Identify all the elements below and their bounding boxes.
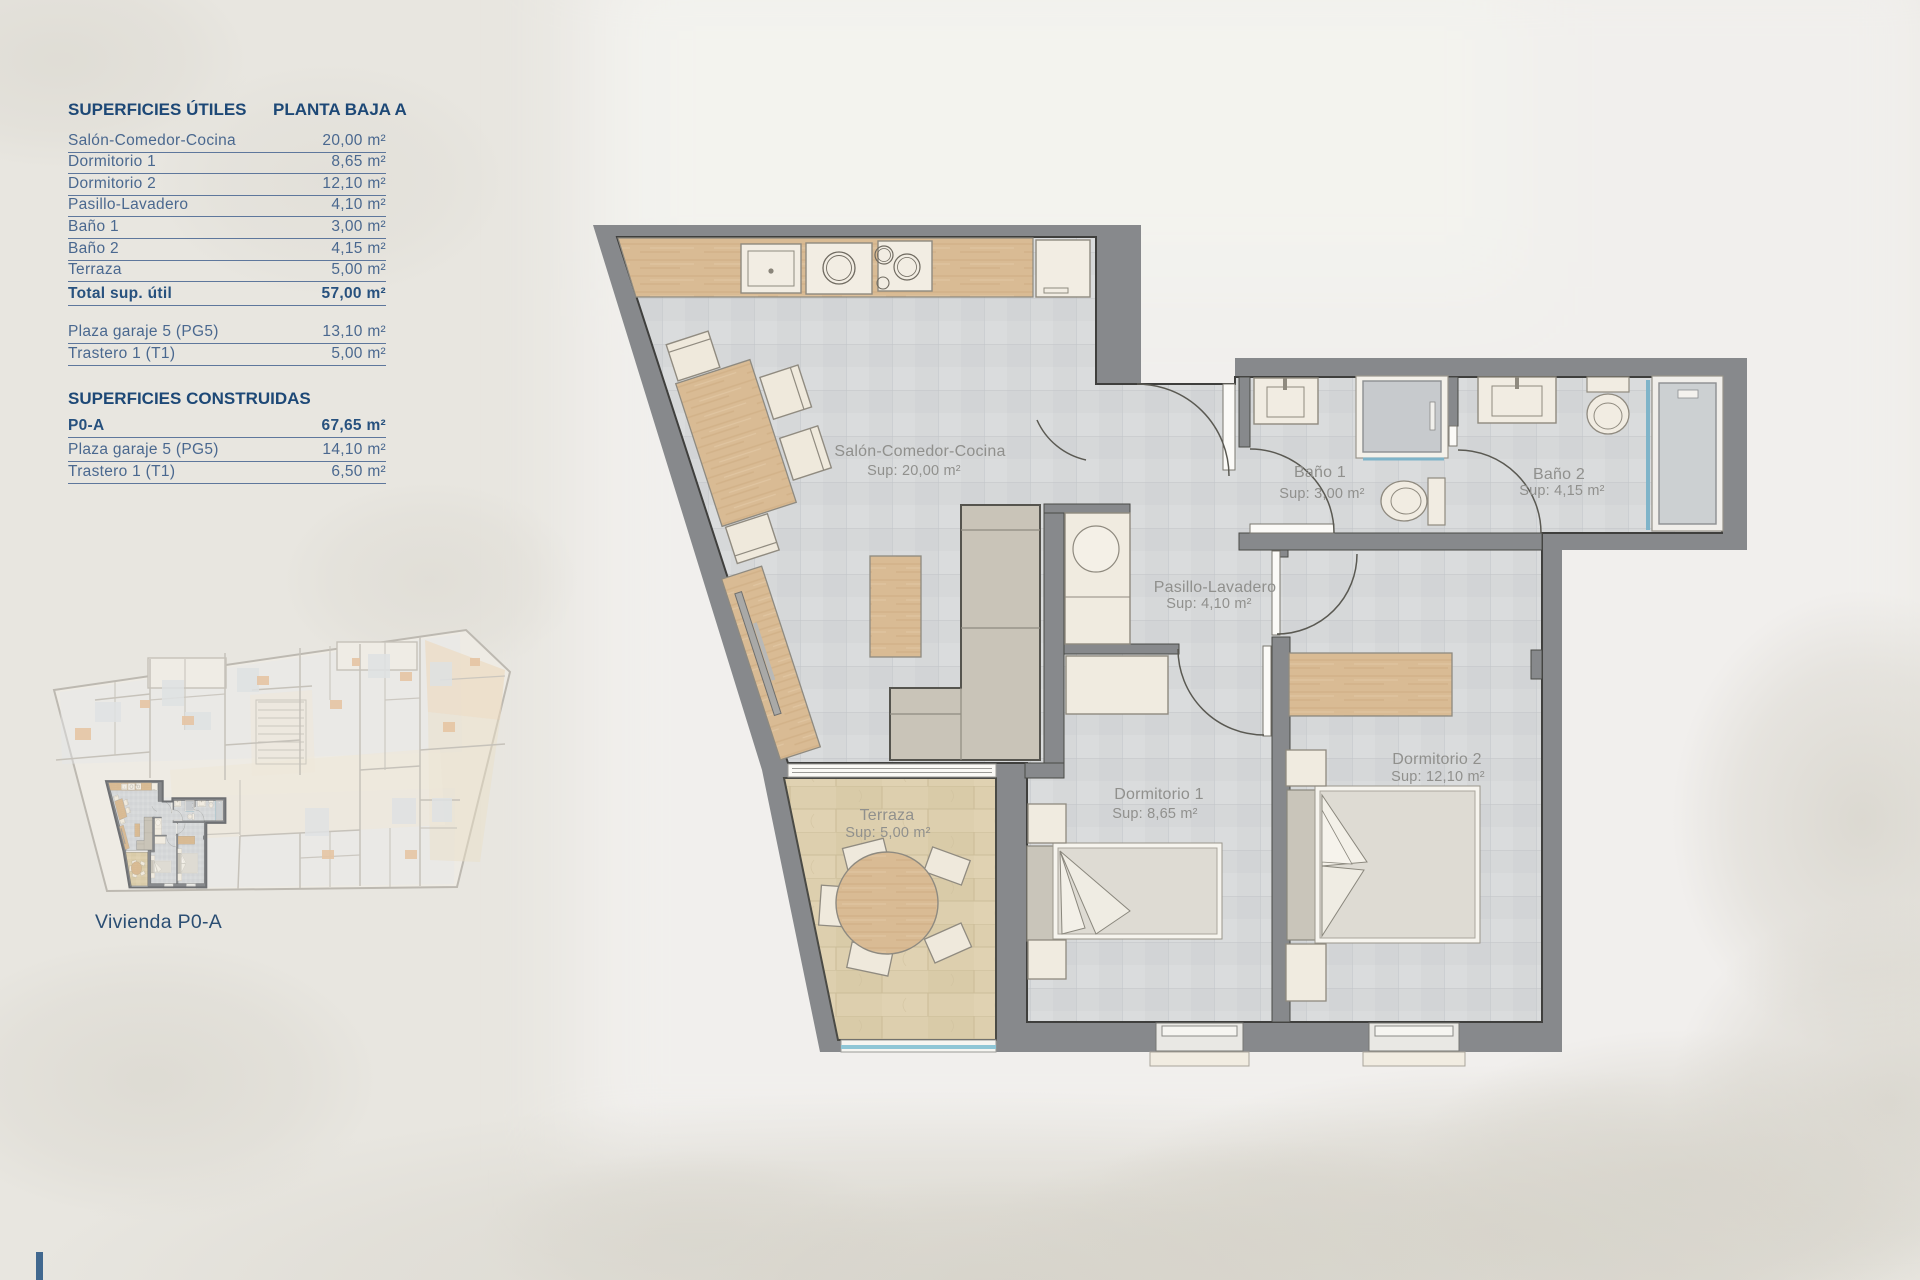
svg-text:Sup: 4,10 m²: Sup: 4,10 m²: [1166, 596, 1251, 612]
svg-text:Sup: 3,00 m²: Sup: 3,00 m²: [1279, 486, 1364, 502]
svg-text:Sup: 5,00 m²: Sup: 5,00 m²: [845, 825, 930, 841]
svg-text:Sup: 12,10 m²: Sup: 12,10 m²: [1391, 769, 1485, 785]
svg-text:Sup: 4,15 m²: Sup: 4,15 m²: [1519, 483, 1604, 499]
svg-text:Dormitorio 2: Dormitorio 2: [1392, 751, 1482, 768]
svg-text:Salón-Comedor-Cocina: Salón-Comedor-Cocina: [834, 443, 1005, 460]
svg-text:Dormitorio 1: Dormitorio 1: [1114, 786, 1204, 803]
svg-text:Baño 1: Baño 1: [1294, 464, 1346, 481]
svg-text:Sup: 20,00 m²: Sup: 20,00 m²: [867, 463, 961, 479]
svg-text:Pasillo-Lavadero: Pasillo-Lavadero: [1154, 579, 1276, 596]
svg-text:Baño 2: Baño 2: [1533, 466, 1585, 483]
svg-text:Sup: 8,65 m²: Sup: 8,65 m²: [1112, 806, 1197, 822]
svg-text:Terraza: Terraza: [860, 807, 915, 824]
